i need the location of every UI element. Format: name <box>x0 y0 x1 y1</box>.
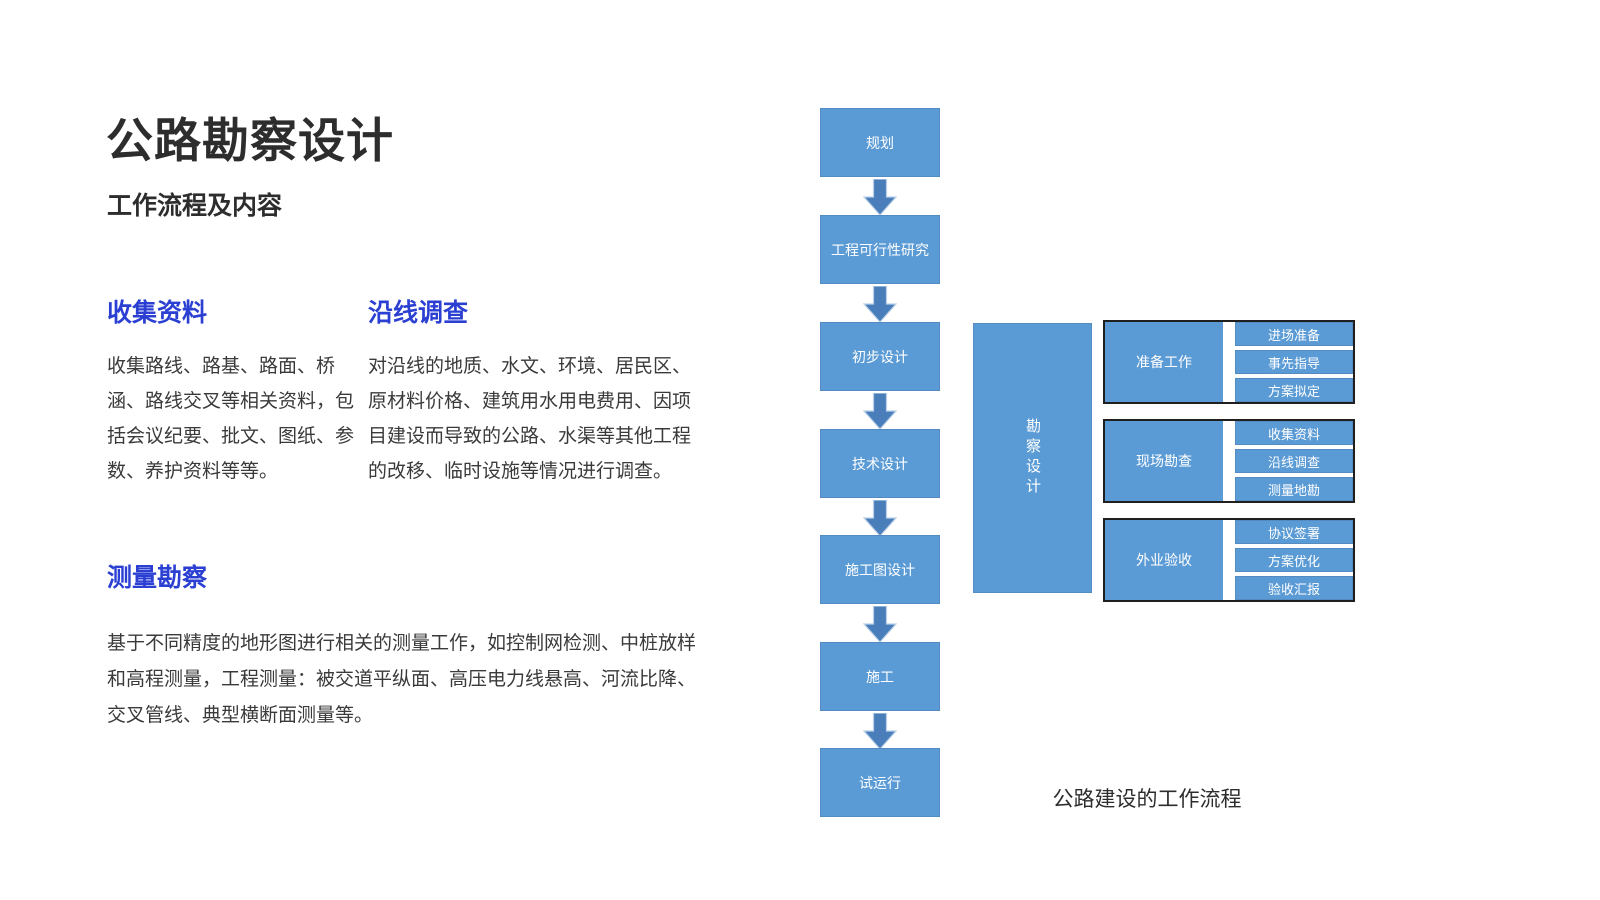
group-item-site-entry-prep: 进场准备 <box>1235 322 1353 346</box>
group-label-field-acceptance: 外业验收 <box>1105 520 1223 600</box>
section-body-route-survey: 对沿线的地质、水文、环境、居民区、原材料价格、建筑用水用电费用、因项目建设而导致… <box>368 349 692 489</box>
group-preparation: 准备工作 进场准备 事先指导 方案拟定 <box>1103 320 1355 404</box>
flow-step-trial-operation: 试运行 <box>820 748 940 817</box>
flow-step-preliminary-design: 初步设计 <box>820 322 940 391</box>
arrow-down-icon <box>863 500 897 536</box>
page-title: 公路勘察设计 <box>106 102 394 171</box>
group-items-field-survey: 收集资料 沿线调查 测量地勘 <box>1235 421 1353 501</box>
arrow-down-icon <box>863 393 897 429</box>
arrow-down-icon <box>863 606 897 642</box>
group-label-field-survey: 现场勘查 <box>1105 421 1223 501</box>
section-heading-route-survey: 沿线调查 <box>368 293 468 329</box>
group-item-geological-survey: 测量地勘 <box>1235 477 1353 501</box>
group-gap <box>1223 322 1235 402</box>
group-gap <box>1223 421 1235 501</box>
group-items-field-acceptance: 协议签署 方案优化 验收汇报 <box>1235 520 1353 600</box>
group-item-acceptance-report: 验收汇报 <box>1235 576 1353 600</box>
arrow-down-icon <box>863 713 897 749</box>
flow-step-construction: 施工 <box>820 642 940 711</box>
section-body-collect-data: 收集路线、路基、路面、桥涵、路线交叉等相关资料，包括会议纪要、批文、图纸、参数、… <box>107 349 361 489</box>
slide-canvas: 公路勘察设计 工作流程及内容 收集资料 收集路线、路基、路面、桥涵、路线交叉等相… <box>0 0 1600 900</box>
arrow-down-icon <box>863 179 897 215</box>
group-item-plan-optimization: 方案优化 <box>1235 548 1353 572</box>
section-heading-measurement: 测量勘察 <box>107 558 207 594</box>
page-subtitle: 工作流程及内容 <box>107 186 282 222</box>
flow-step-technical-design: 技术设计 <box>820 429 940 498</box>
section-body-measurement: 基于不同精度的地形图进行相关的测量工作，如控制网检测、中桩放样和高程测量，工程测… <box>107 626 699 734</box>
section-heading-collect-data: 收集资料 <box>107 293 207 329</box>
flow-step-construction-drawing-design: 施工图设计 <box>820 535 940 604</box>
flow-step-planning: 规划 <box>820 108 940 177</box>
group-gap <box>1223 520 1235 600</box>
group-field-survey: 现场勘查 收集资料 沿线调查 测量地勘 <box>1103 419 1355 503</box>
group-items-preparation: 进场准备 事先指导 方案拟定 <box>1235 322 1353 402</box>
flowchart-caption: 公路建设的工作流程 <box>997 783 1297 813</box>
group-field-acceptance: 外业验收 协议签署 方案优化 验收汇报 <box>1103 518 1355 602</box>
group-item-route-survey: 沿线调查 <box>1235 449 1353 473</box>
group-item-collect-data: 收集资料 <box>1235 421 1353 445</box>
group-label-preparation: 准备工作 <box>1105 322 1223 402</box>
group-item-prior-guidance: 事先指导 <box>1235 350 1353 374</box>
group-item-agreement-signing: 协议签署 <box>1235 520 1353 544</box>
arrow-down-icon <box>863 286 897 322</box>
survey-design-vertical-label: 勘察设计 <box>1022 418 1043 498</box>
survey-design-box: 勘察设计 <box>973 323 1092 593</box>
flow-step-feasibility-study: 工程可行性研究 <box>820 215 940 284</box>
group-item-plan-drafting: 方案拟定 <box>1235 378 1353 402</box>
